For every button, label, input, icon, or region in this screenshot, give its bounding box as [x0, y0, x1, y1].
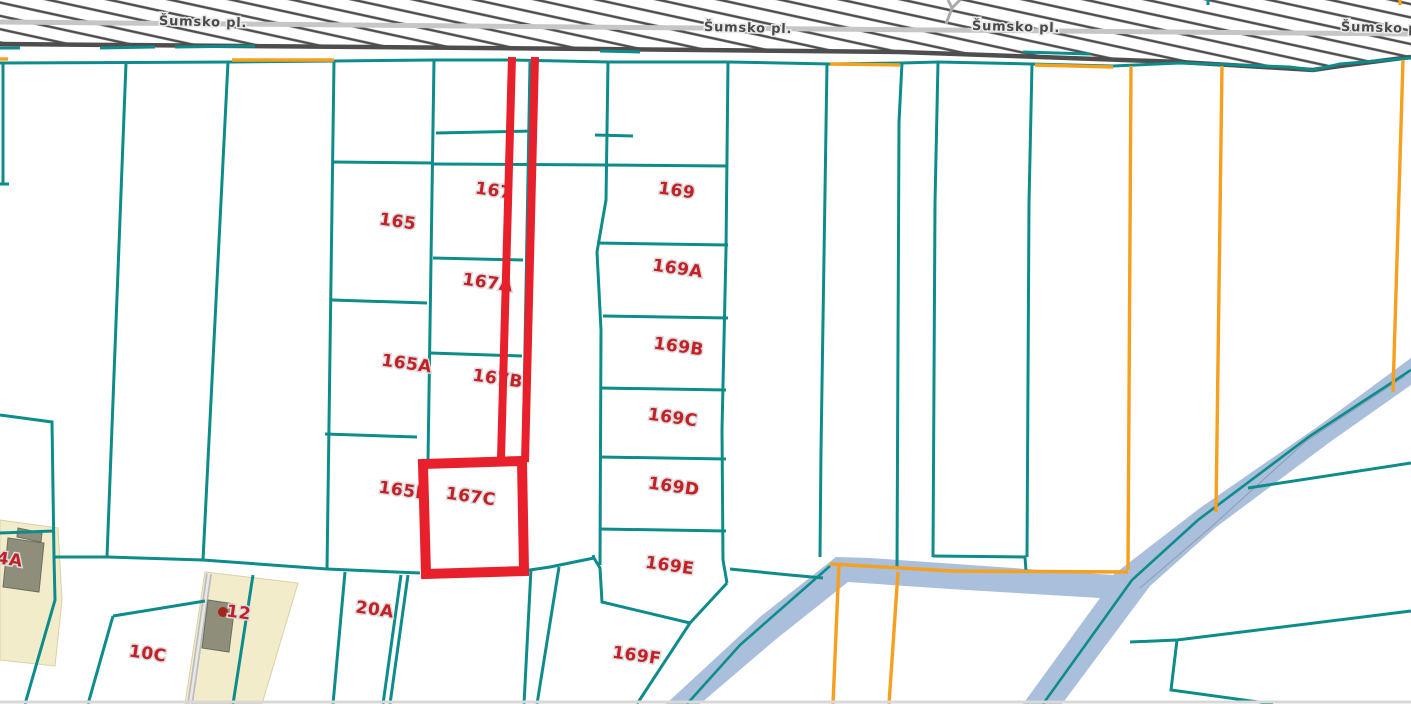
building-parcels: [0, 520, 298, 704]
parcel-label-20a: 20A: [354, 597, 395, 622]
stream: [666, 358, 1411, 704]
parcel-boundary-line: [600, 529, 726, 531]
parcel-label-4a: 4A: [0, 548, 24, 571]
parcel-boundary-line: [1130, 611, 1411, 642]
parcel-boundary-line: [88, 616, 113, 704]
parcel-boundary-line: [524, 569, 531, 704]
parcel-label-169d: 169D: [647, 474, 701, 501]
parcel-label-165: 165: [378, 210, 417, 235]
parcel-boundary-line: [1023, 52, 1090, 54]
road-hatch-band: [0, 0, 1411, 70]
parcel-boundary-line: [327, 61, 334, 570]
highlight-strip-line[interactable]: [525, 57, 535, 462]
parcel-boundary-line: [597, 243, 728, 245]
parcel-boundary-line: [593, 555, 594, 558]
parcel-boundary-line: [325, 434, 417, 437]
secondary-boundary-line: [1216, 66, 1222, 512]
parcel-label-169: 169: [657, 179, 696, 204]
road-corridor: [0, 0, 1411, 70]
highlight-parcel-rect[interactable]: [423, 461, 524, 574]
parcel-label-167c: 167C: [445, 484, 497, 511]
secondary-boundary-line: [889, 572, 898, 704]
parcel-boundary-line: [537, 567, 559, 704]
parcel-label-169b: 169B: [652, 334, 705, 361]
secondary-boundary-line: [1128, 66, 1131, 570]
parcel-boundary-line: [54, 557, 420, 573]
parcel-label-169a: 169A: [651, 256, 704, 283]
parcel-boundary-line: [595, 135, 633, 136]
parcel-label-169f: 169F: [611, 643, 662, 670]
parcel-label-169c: 169C: [647, 405, 699, 432]
parcel-label-167b: 167B: [471, 366, 524, 393]
parcel-boundary-line: [897, 63, 902, 569]
parcel-boundary-line: [597, 62, 608, 565]
secondary-boundary-line: [830, 64, 900, 65]
parcel-label-12: 12: [225, 601, 252, 624]
parcel-boundary-line: [603, 316, 728, 318]
parcel-boundary-line: [436, 131, 536, 133]
parcel-boundary-line: [690, 583, 727, 623]
parcel-boundary-line: [1171, 640, 1273, 704]
parcel-boundary-line: [600, 457, 726, 459]
road-label-2: Šumsko pl.: [972, 18, 1061, 36]
parcel-boundary-line: [107, 63, 126, 557]
secondary-boundary-line: [1393, 60, 1403, 392]
parcel-boundary-line: [730, 569, 823, 578]
parcel-label-10c: 10C: [128, 642, 168, 667]
parcel-boundary-line: [820, 63, 827, 557]
map-canvas[interactable]: 165167167A165A167B165B167C169169A169B169…: [0, 0, 1411, 704]
parcel-boundary-line: [428, 60, 434, 461]
map-viewport[interactable]: 165167167A165A167B165B167C169169A169B169…: [0, 0, 1411, 704]
parcel-boundary-line: [113, 601, 205, 616]
road-label-0: Šumsko pl.: [159, 13, 248, 31]
parcel-boundary-line: [1027, 64, 1032, 557]
parcel-boundary-line: [100, 47, 155, 48]
parcel-boundary-line: [433, 164, 608, 165]
parcel-boundary-line: [0, 531, 53, 533]
parcel-boundary-line: [332, 300, 427, 303]
parcel-boundary-line: [332, 162, 433, 163]
parcel-boundary-line: [600, 51, 640, 52]
parcel-label-165a: 165A: [380, 351, 433, 378]
parcel-label-169e: 169E: [644, 553, 695, 580]
parcel-boundary-line: [175, 46, 255, 47]
parcel-boundary-line: [600, 388, 726, 390]
parcel-boundary-line: [203, 62, 228, 560]
parcel-boundary-line: [722, 62, 728, 583]
road-label-1: Šumsko pl.: [704, 19, 793, 37]
stream-body: [666, 358, 1411, 704]
parcel-boundary-line: [933, 62, 938, 557]
parcel-boundary-line: [430, 353, 522, 356]
road-label-3: Šumsko pl.: [1341, 19, 1411, 37]
secondary-boundary-line: [1035, 65, 1113, 67]
parcel-boundary-line: [603, 165, 728, 166]
highlight-strip-line[interactable]: [501, 57, 512, 458]
parcel-boundary-line: [333, 572, 345, 704]
